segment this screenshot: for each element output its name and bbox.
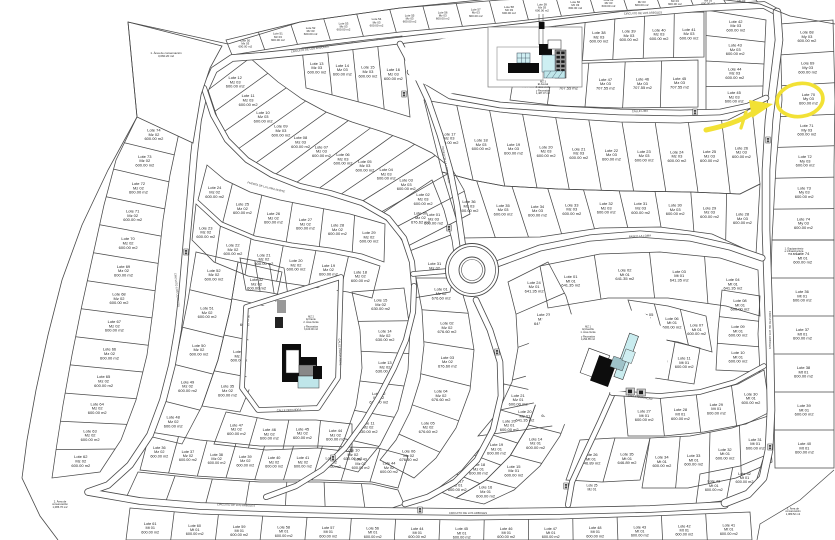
- svg-text:y Recreativa4,294.85 m2: y Recreativa4,294.85 m2: [581, 336, 596, 342]
- svg-text:CALLE LIMA: CALLE LIMA: [632, 109, 648, 114]
- svg-text:y Recreativa1,487.07 m2: y Recreativa1,487.07 m2: [536, 90, 551, 96]
- svg-text:Lote 25Mz 01: Lote 25Mz 01: [587, 484, 598, 492]
- svg-text:2. Área deconservación1,086.76: 2. Área deconservación1,086.76 m2: [52, 499, 68, 509]
- svg-text:CIRCUITO DE LOS ARBOLES: CIRCUITO DE LOS ARBOLES: [768, 311, 772, 349]
- svg-text:CIRCUITO DE LOS ARBOLES: CIRCUITO DE LOS ARBOLES: [449, 511, 487, 515]
- svg-text:y Recreativa3,100.00 m2: y Recreativa3,100.00 m2: [304, 326, 319, 332]
- svg-text:1. Área deconservación1,089.52: 1. Área deconservación1,089.52 m2: [785, 506, 801, 516]
